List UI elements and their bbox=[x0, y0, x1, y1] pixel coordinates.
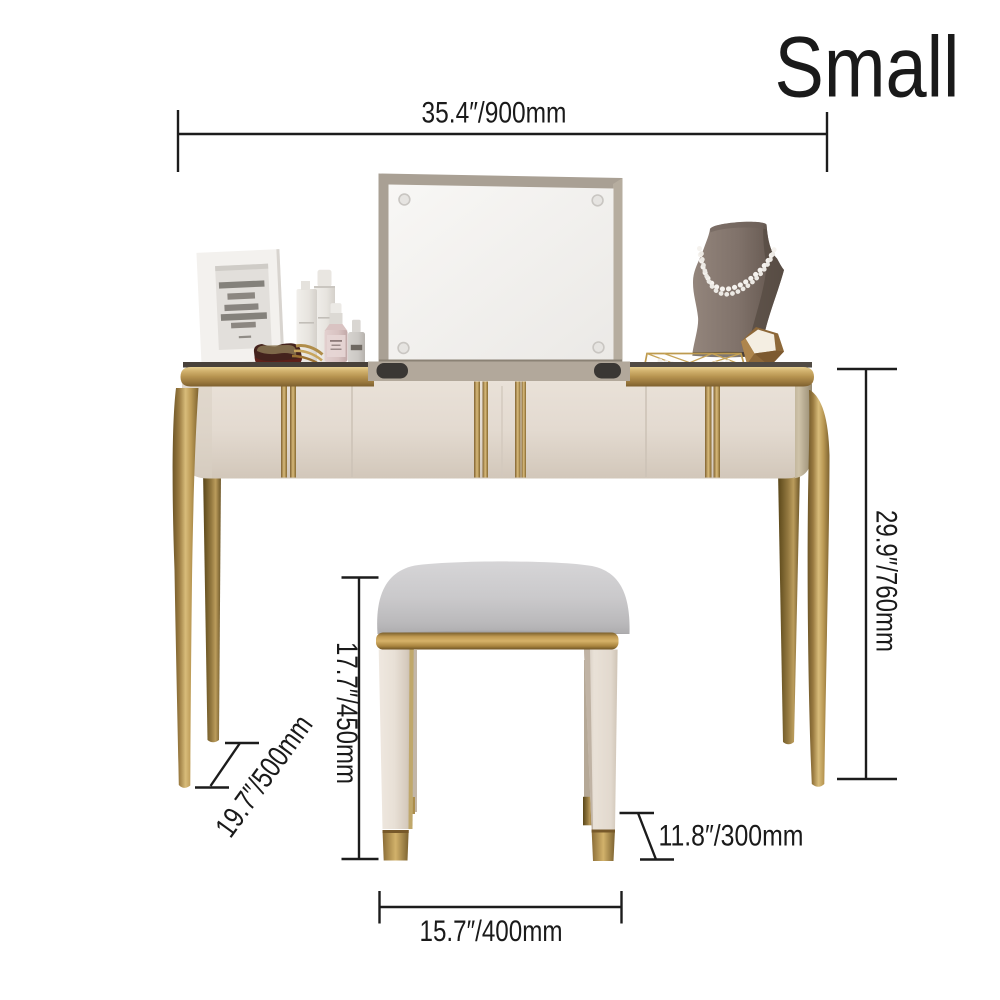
svg-text:29.9″/760mm: 29.9″/760mm bbox=[870, 510, 903, 652]
svg-text:Small: Small bbox=[775, 20, 960, 116]
svg-text:11.8″/300mm: 11.8″/300mm bbox=[659, 820, 804, 853]
svg-text:17.7″/450mm: 17.7″/450mm bbox=[330, 642, 363, 784]
svg-text:15.7″/400mm: 15.7″/400mm bbox=[420, 915, 563, 948]
svg-text:35.4″/900mm: 35.4″/900mm bbox=[422, 97, 567, 130]
